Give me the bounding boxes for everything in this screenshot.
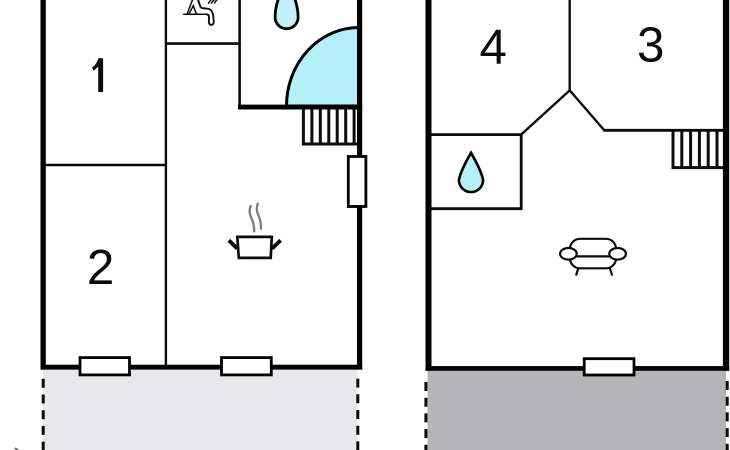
- svg-text:3: 3: [637, 18, 664, 73]
- svg-text:2: 2: [87, 240, 114, 295]
- svg-text:4: 4: [479, 20, 506, 75]
